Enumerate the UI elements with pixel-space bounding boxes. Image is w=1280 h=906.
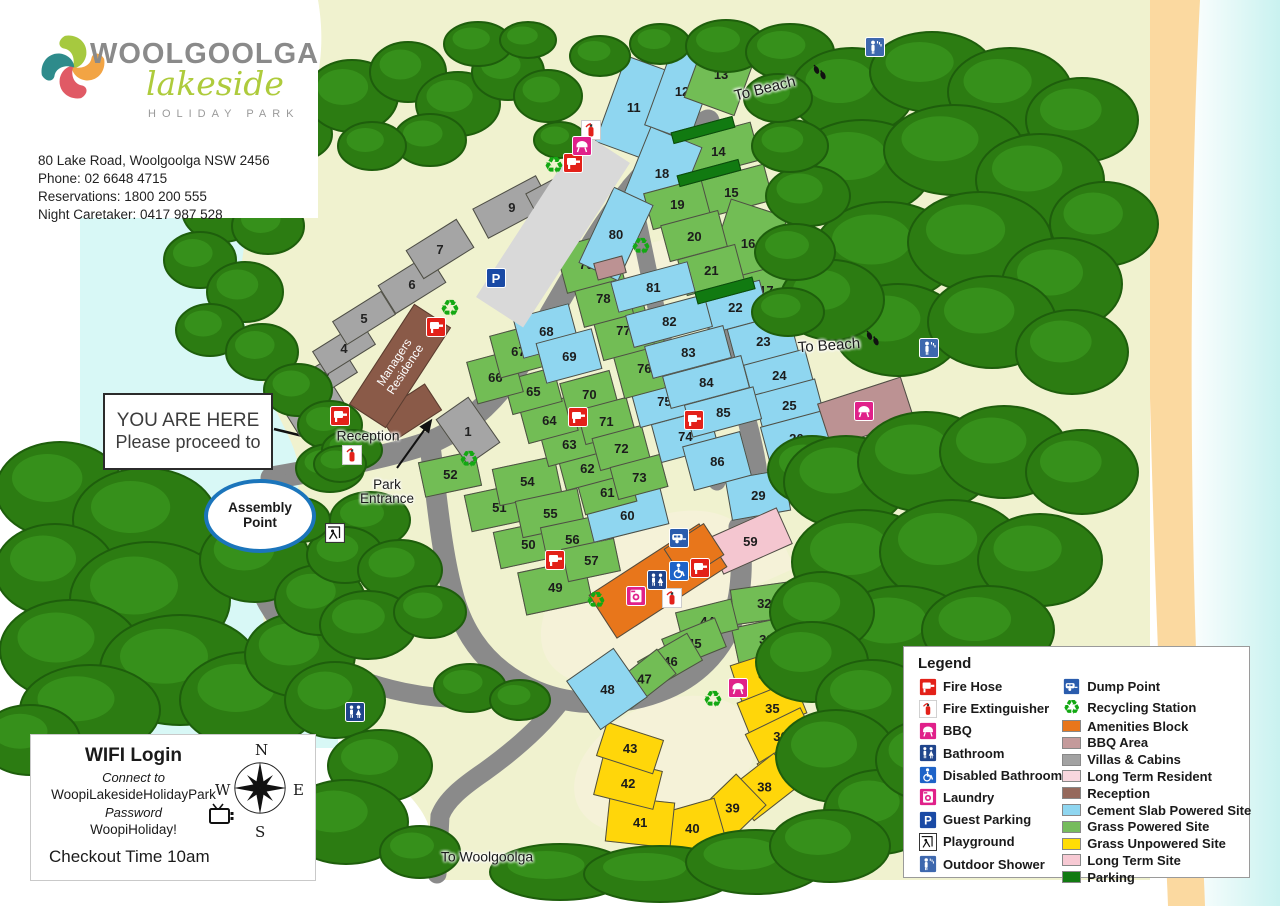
park-entrance-label: Park Entrance: [360, 478, 414, 506]
checkout-time: Checkout Time 10am: [49, 847, 210, 867]
legend-item: Playground: [918, 832, 1062, 851]
reception-label: Reception: [336, 429, 399, 444]
legend-swatch: [1062, 838, 1081, 850]
legend-swatch: [1062, 754, 1081, 766]
legend-title: Legend: [918, 655, 1249, 672]
wifi-password-label: Password: [41, 805, 226, 820]
legend-swatch: [1062, 737, 1081, 749]
legend-item: BBQ: [918, 721, 1062, 740]
park-map-page: 1112131415161718192021222324252629323334…: [0, 0, 1280, 906]
legend-item: Laundry: [918, 788, 1062, 807]
parking-icon: P: [918, 810, 937, 829]
legend-item: Disabled Bathroom: [918, 766, 1062, 785]
address: 80 Lake Road, Woolgoolga NSW 2456: [38, 152, 318, 170]
legend-item: Outdoor Shower: [918, 855, 1062, 874]
legend-swatch-column: Dump Point♻Recycling StationAmenities Bl…: [1062, 677, 1251, 887]
legend-item: Long Term Site: [1062, 853, 1251, 868]
legend-item-label: Villas & Cabins: [1087, 752, 1181, 767]
legend-item-label: Guest Parking: [943, 812, 1031, 827]
legend-item: Reception: [1062, 786, 1251, 801]
legend-swatch: [1062, 770, 1081, 782]
night-caretaker: Night Caretaker: 0417 987 528: [38, 206, 318, 224]
legend-item: Fire Hose: [918, 677, 1062, 696]
legend-swatch: [1062, 804, 1081, 816]
to-woolgoolga: To Woolgoolga: [441, 850, 533, 865]
bbq-icon: [918, 721, 937, 740]
legend-item: ♻Recycling Station: [1062, 698, 1251, 717]
you-are-here-line2: Please proceed to: [115, 432, 260, 453]
you-are-here-box: YOU ARE HERE Please proceed to: [103, 393, 273, 470]
legend-item: Dump Point: [1062, 677, 1251, 696]
legend-item: Long Term Resident: [1062, 769, 1251, 784]
laundry-icon: [918, 788, 937, 807]
legend-item-label: Playground: [943, 834, 1015, 849]
recycle-icon: ♻: [1062, 698, 1081, 717]
dump-icon: [1062, 677, 1081, 696]
legend-swatch: [1062, 787, 1081, 799]
legend-icon-column: Fire HoseFire ExtinguisherBBQBathroomDis…: [918, 677, 1062, 887]
assembly-line1: Assembly: [228, 501, 292, 516]
legend-item-label: Grass Unpowered Site: [1087, 836, 1226, 851]
bathroom-icon: [918, 744, 937, 763]
to-beach-top: To Beach: [733, 74, 797, 104]
legend-item-label: Dump Point: [1087, 679, 1160, 694]
legend: Legend Fire HoseFire ExtinguisherBBQBath…: [903, 646, 1250, 878]
assembly-line2: Point: [243, 516, 277, 531]
legend-item-label: BBQ Area: [1087, 735, 1148, 750]
legend-item: Cement Slab Powered Site: [1062, 803, 1251, 818]
legend-swatch: [1062, 871, 1081, 883]
legend-item-label: Parking: [1087, 870, 1135, 885]
compass-n: N: [255, 741, 268, 759]
legend-item-label: Recycling Station: [1087, 700, 1196, 715]
shower-icon: [918, 855, 937, 874]
you-are-here-line1: YOU ARE HERE: [117, 410, 260, 432]
wifi-connect-label: Connect to: [41, 770, 226, 785]
wifi-card: WIFI Login Connect to WoopiLakesideHolid…: [30, 734, 316, 881]
fire-hose-icon: [918, 677, 937, 696]
legend-item: Grass Powered Site: [1062, 819, 1251, 834]
legend-item: Fire Extinguisher: [918, 699, 1062, 718]
legend-item-label: Laundry: [943, 790, 994, 805]
legend-item-label: Bathroom: [943, 746, 1004, 761]
legend-item: BBQ Area: [1062, 735, 1251, 750]
legend-item-label: Grass Powered Site: [1087, 819, 1209, 834]
legend-item: PGuest Parking: [918, 810, 1062, 829]
legend-item-label: Fire Extinguisher: [943, 701, 1049, 716]
fire-ext-icon: [918, 699, 937, 718]
phone: Phone: 02 6648 4715: [38, 170, 318, 188]
legend-item-label: Disabled Bathroom: [943, 768, 1062, 783]
legend-item: Amenities Block: [1062, 719, 1251, 734]
legend-swatch: [1062, 821, 1081, 833]
legend-item-label: Cement Slab Powered Site: [1087, 803, 1251, 818]
wifi-network: WoopiLakesideHolidayPark: [41, 787, 226, 802]
legend-item-label: Long Term Site: [1087, 853, 1181, 868]
legend-swatch: [1062, 720, 1081, 732]
assembly-point-badge: Assembly Point: [204, 479, 316, 553]
svg-text:P: P: [924, 814, 932, 827]
compass-s: S: [255, 823, 265, 841]
brand-script: lakeside: [146, 64, 284, 103]
legend-item-label: Amenities Block: [1087, 719, 1188, 734]
reservations: Reservations: 1800 200 555: [38, 188, 318, 206]
brand-subtitle: HOLIDAY PARK: [148, 108, 299, 120]
legend-item: Parking: [1062, 870, 1251, 885]
legend-item-label: Fire Hose: [943, 679, 1002, 694]
legend-item-label: BBQ: [943, 723, 972, 738]
compass-star-icon: [231, 759, 289, 817]
compass-e: E: [293, 781, 304, 799]
legend-item-label: Long Term Resident: [1087, 769, 1212, 784]
legend-item: Villas & Cabins: [1062, 752, 1251, 767]
compass-rose: N E S W: [213, 741, 305, 845]
wifi-title: WIFI Login: [41, 745, 226, 767]
legend-swatch: [1062, 854, 1081, 866]
to-beach-right: To Beach: [797, 336, 860, 356]
legend-item-label: Outdoor Shower: [943, 857, 1045, 872]
contact-block: 80 Lake Road, Woolgoolga NSW 2456 Phone:…: [38, 152, 318, 224]
legend-item: Grass Unpowered Site: [1062, 836, 1251, 851]
brand-card: WOOLGOOLGA lakeside HOLIDAY PARK 80 Lake…: [26, 12, 318, 218]
disabled-icon: [918, 766, 937, 785]
legend-item-label: Reception: [1087, 786, 1150, 801]
compass-w: W: [215, 781, 230, 799]
wifi-password: WoopiHoliday!: [41, 822, 226, 837]
legend-item: Bathroom: [918, 744, 1062, 763]
playground-icon: [918, 832, 937, 851]
tv-icon: [209, 803, 235, 825]
